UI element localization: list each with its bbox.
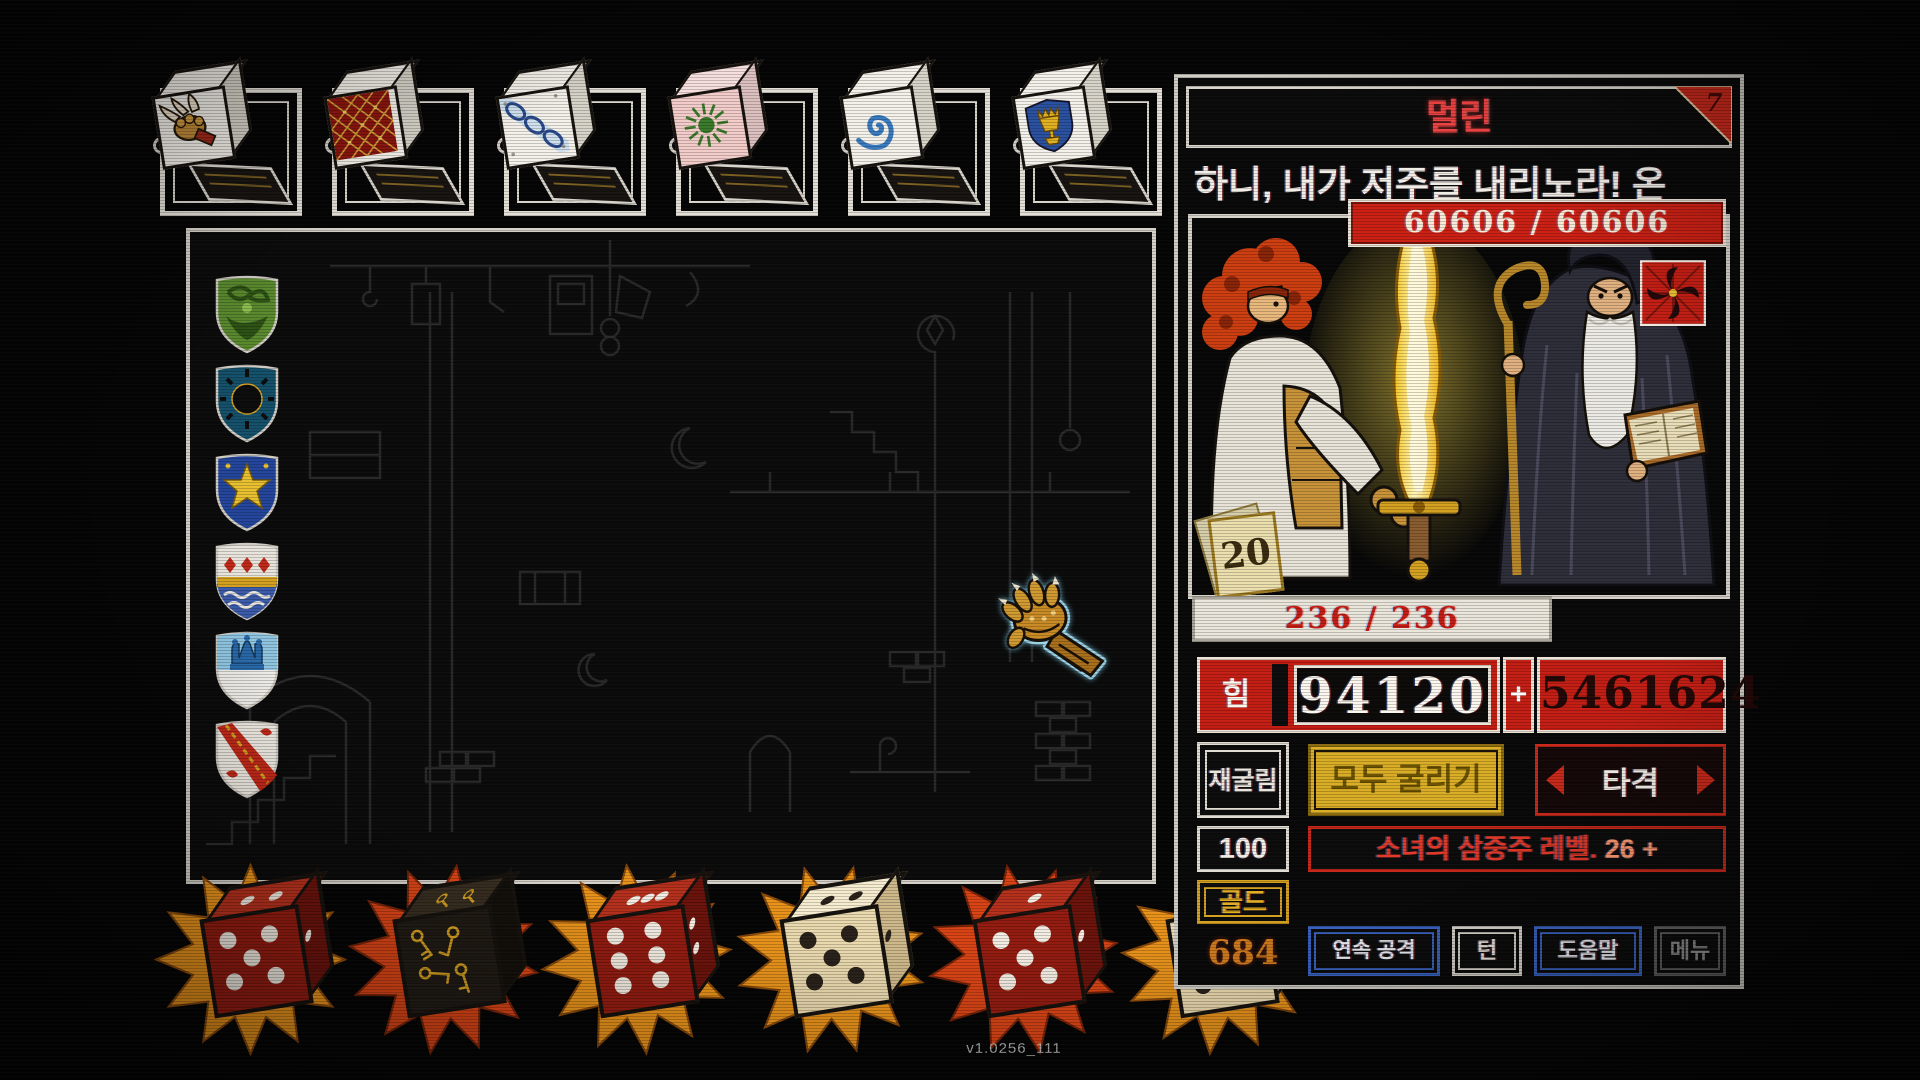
- gold-value: 684: [1197, 930, 1289, 976]
- strength-row: 힘 94120 + 5461624: [1197, 657, 1726, 733]
- right-chevron-icon: [1697, 765, 1715, 795]
- left-chevron-icon: [1546, 765, 1564, 795]
- crest-red-bend-chain-icon: [212, 717, 282, 801]
- gold-label: 골드: [1197, 880, 1289, 924]
- red-pinwheel-curse-icon: [1640, 260, 1706, 326]
- strength-bar: 힘 94120: [1197, 657, 1500, 733]
- strength-bonus-value: 5461624: [1537, 657, 1726, 733]
- reroll-button[interactable]: 재굴림: [1197, 742, 1289, 818]
- enemy-name: 멀린: [1189, 89, 1729, 145]
- skill-level-value: 26 +: [1605, 834, 1658, 864]
- crest-gold-star-icon: [212, 450, 282, 534]
- strike-button[interactable]: 타격: [1535, 744, 1726, 816]
- die-card-value: 20: [1207, 511, 1284, 599]
- rolled-die-5[interactable]: [926, 862, 1121, 1057]
- top-die-slot-4[interactable]: [676, 88, 818, 216]
- reroll-count: 100: [1197, 826, 1289, 872]
- gold-lattice-die-icon: [320, 60, 430, 170]
- enemy-hp-value: 60606 / 60606: [1404, 205, 1671, 240]
- crest-black-sun-icon: [212, 361, 282, 445]
- enemy-title-bar: 멀린 7: [1186, 86, 1732, 148]
- top-die-slot-6[interactable]: [1020, 88, 1162, 216]
- strength-value: 94120: [1294, 665, 1491, 725]
- roll-all-button[interactable]: 모두 굴리기: [1308, 744, 1504, 816]
- divider: [1272, 664, 1288, 726]
- strength-label: 힘: [1200, 660, 1272, 730]
- rolled-result-die: 20: [1212, 515, 1278, 593]
- turn-button[interactable]: 턴: [1452, 926, 1522, 976]
- top-die-slot-2[interactable]: [332, 88, 474, 216]
- rolled-die-1[interactable]: [153, 862, 348, 1057]
- player-hp-value: 236 / 236: [1284, 601, 1459, 636]
- version-label: v1.0256_111: [929, 1040, 1099, 1057]
- blue-spiral-die-icon: [836, 60, 946, 170]
- enemy-hp-bar: 60606 / 60606: [1348, 199, 1726, 247]
- top-die-slot-5[interactable]: [848, 88, 990, 216]
- blue-chain-die-icon: [492, 60, 602, 170]
- crest-blue-crown-icon: [212, 628, 282, 712]
- board-background-art: [190, 232, 1152, 880]
- menu-button[interactable]: 메뉴: [1654, 926, 1726, 976]
- turn-counter-badge: 7: [1674, 86, 1732, 144]
- player-hp-bar: 236 / 236: [1192, 596, 1552, 642]
- combo-attack-button[interactable]: 연속 공격: [1308, 926, 1440, 976]
- rolled-die-3[interactable]: [539, 862, 734, 1057]
- crest-green-foliage-icon: [212, 272, 282, 356]
- skill-banner: 소녀의 삼중주 레벨. 26 +: [1308, 826, 1726, 872]
- rolled-die-2[interactable]: [346, 862, 541, 1057]
- enemy-panel: 멀린 7 하니, 내가 저주를 내리노라! 온: [1178, 78, 1740, 985]
- game-screen: 멀린 7 하니, 내가 저주를 내리노라! 온: [0, 0, 1920, 1080]
- top-die-slot-3[interactable]: [504, 88, 646, 216]
- chalice-shield-die-icon: [1008, 60, 1118, 170]
- rolled-die-4[interactable]: [733, 862, 928, 1057]
- crest-red-diamond-banded-icon: [212, 539, 282, 623]
- top-die-slot-1[interactable]: [160, 88, 302, 216]
- claw-fist-die-icon: [148, 60, 258, 170]
- gauntlet-cursor-icon: [998, 570, 1122, 686]
- help-button[interactable]: 도움말: [1534, 926, 1642, 976]
- strike-label: 타격: [1602, 758, 1659, 803]
- svg-text:7: 7: [1706, 88, 1723, 117]
- skill-text: 소녀의 삼중주 레벨.: [1376, 834, 1597, 864]
- plus-sign: +: [1503, 657, 1534, 733]
- game-board: [190, 232, 1152, 880]
- green-sunburst-die-icon: [664, 60, 774, 170]
